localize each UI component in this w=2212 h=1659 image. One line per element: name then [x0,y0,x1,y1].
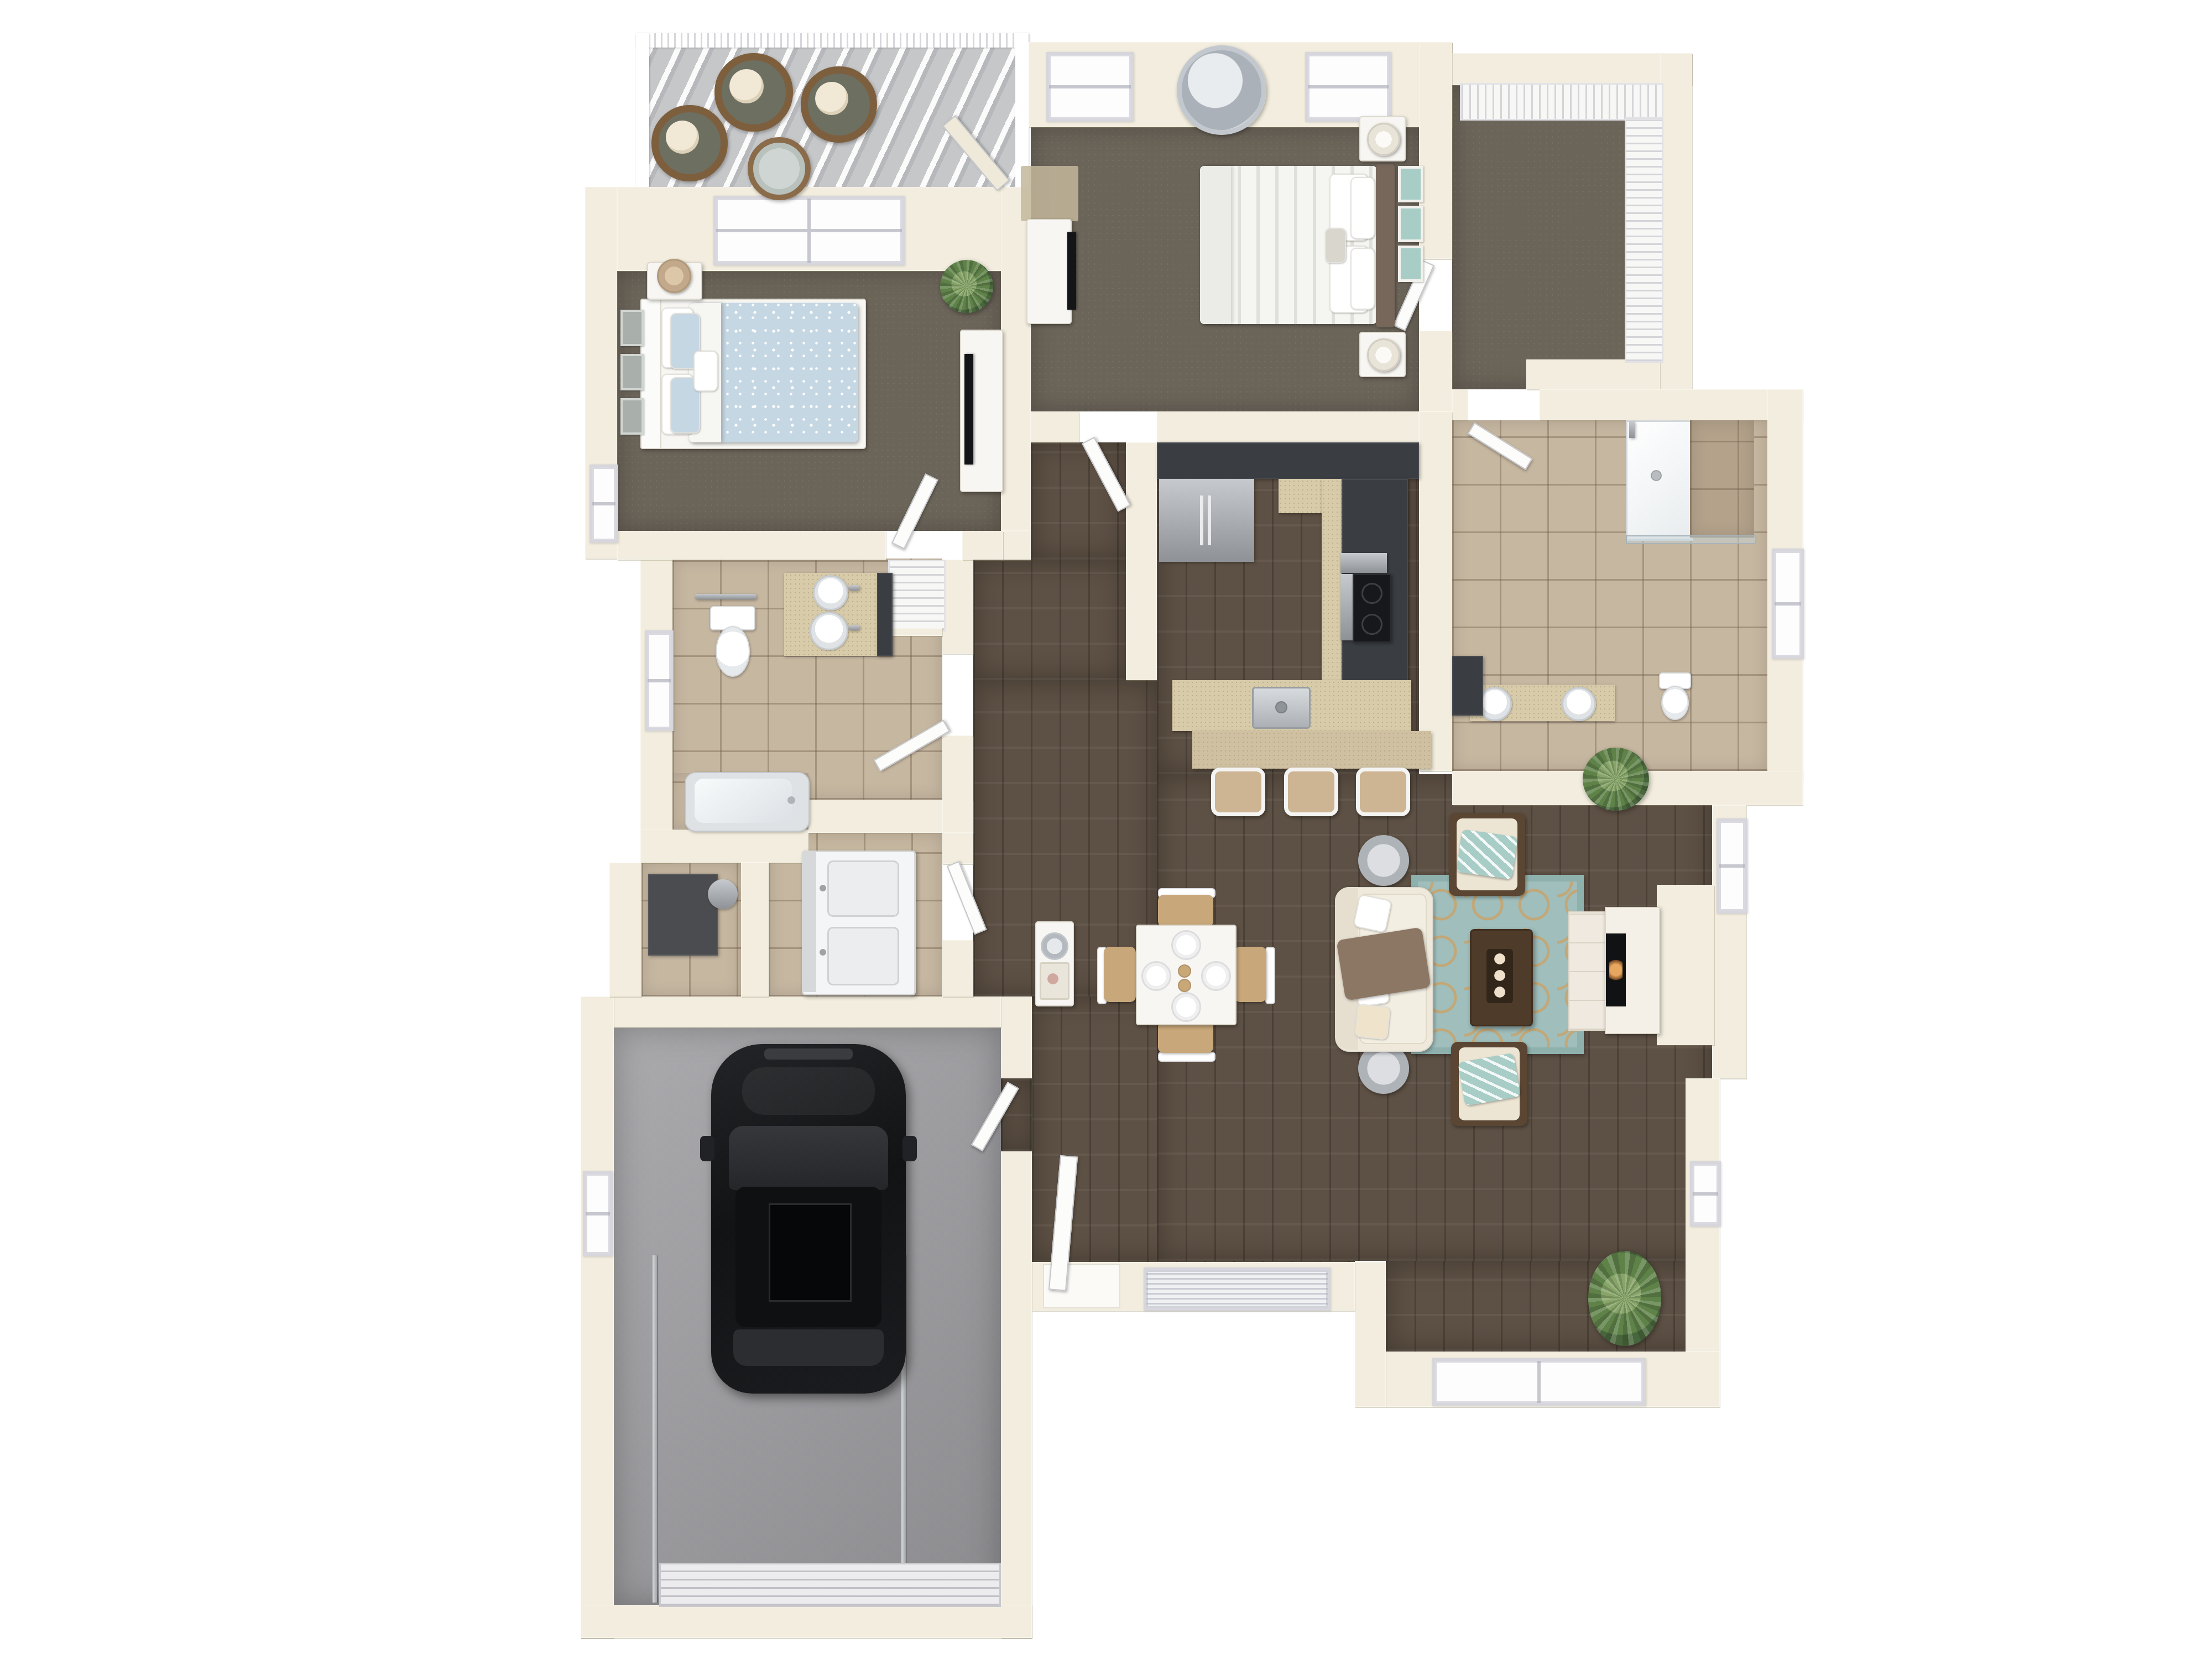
dining-candle-1 [1178,964,1191,978]
bar-stool-2 [1284,768,1338,816]
living-window-bottom [1432,1358,1646,1406]
dining-chair-right [1234,947,1266,1002]
master-headboard [1376,164,1395,327]
patio-chair-1 [714,53,793,132]
shower-drain [1651,470,1662,481]
hall-vanity-faucet-1 [848,585,859,591]
hall-bath-window [645,630,674,731]
closet-shelf-top [1460,83,1663,121]
dining-chair-bottom [1158,1021,1213,1053]
wall-garage-left [581,997,614,1638]
hall-floor-upper [1031,442,1126,560]
washer-door [827,927,899,985]
furnace [648,874,718,956]
patio-chair-3 [651,105,728,181]
suv-sunroof [769,1203,852,1302]
master-lamp-1 [1367,123,1400,156]
wall-master-closet-a [1419,42,1452,259]
hall-floor-mid [973,560,1126,680]
sofa-pillow-1 [1353,894,1392,933]
master-art-2 [1398,206,1423,242]
floorplan-stage [0,0,2212,1659]
bar-stool-1 [1211,768,1265,816]
bar-stool-3 [1356,768,1410,816]
palm-plant [1583,748,1649,811]
washer-dryer-side-panel [802,851,816,992]
burner-1 [1361,583,1383,604]
refrigerator-handles [1200,495,1203,545]
master-pillow-4 [1350,248,1375,310]
wall-frame-2 [620,354,644,390]
refrigerator [1159,479,1254,562]
wall-bedrooms-hall-b [962,531,1003,560]
suv-hood [742,1067,875,1115]
foyer-window [1144,1267,1331,1311]
wall-master-closet-b [1419,331,1452,411]
dining-chair-top [1158,895,1213,927]
garage-window [583,1171,613,1256]
hall-vanity-sink-1 [813,575,848,611]
fireplace-hearth [1568,911,1607,1031]
master-duvet-fold [1200,166,1231,324]
wall-masterbath-top-b [1540,389,1803,420]
dining-chair-left [1104,947,1136,1002]
shower-glass-door [1626,535,1756,544]
wall-bedrooms-hall-a [617,531,886,560]
kitchen-upper-cabinets [1157,442,1419,479]
wall-fireplace-bump [1657,885,1714,1045]
place-setting-1 [1171,930,1201,960]
wall-garage-bottom [581,1605,1032,1638]
patio-railing-top [636,33,1029,48]
master-bath-window [1772,549,1804,659]
wall-master-bottom-b [1157,411,1419,442]
master-lamp-2 [1367,338,1400,372]
hall-vanity-sink-2 [810,612,848,650]
wall-closet-top [1452,53,1692,85]
garage-door-track-left [653,1255,657,1603]
wall-garage-top [581,997,1001,1027]
suv-grille [764,1048,853,1060]
great-room-floor-south [1386,1261,1712,1352]
console-shell [1047,973,1058,984]
fireplace-flame [1609,958,1623,982]
island-bar-tier [1192,731,1431,769]
chair-cushion [815,82,848,115]
wall-hallbath-right-b [942,735,973,833]
place-setting-4 [1201,961,1231,991]
suv-car [711,1044,906,1394]
towel-bar [695,594,757,599]
hall-vanity-faucet-2 [848,625,859,630]
chair-cushion [729,69,764,103]
wall-closet-bottom [1526,359,1660,389]
wall-tubnook-bottom [640,830,808,863]
furnace-duct [708,879,738,909]
patio-table [748,137,811,200]
shower-base [1626,420,1693,541]
hall-vanity-cabinet [877,573,893,656]
master-window-left [1046,52,1134,122]
suv-mirror-left [700,1136,714,1161]
patio-railing-left [636,33,649,187]
wall-bedroom2-right-stub [1001,531,1031,560]
shower-bench [1690,420,1754,538]
suv-mirror-right [902,1136,917,1161]
master-tv-console [1026,219,1072,324]
burner-2 [1361,614,1383,635]
fern-plant [1588,1251,1661,1346]
suv-rear-window [733,1329,884,1366]
place-setting-3 [1141,961,1171,991]
bedroom2-plant [940,260,993,313]
bedroom2-lamp [657,259,691,293]
linen-closet-wall [888,628,942,636]
hall-toilet-bowl [716,626,750,677]
living-window-right-upper [1717,818,1747,914]
dryer-knob [820,949,826,956]
master-art-3 [1398,246,1423,282]
shower-head [1629,421,1635,438]
dining-chair-back-bottom [1158,1052,1215,1062]
bathtub-drain [787,796,795,804]
wall-frame-1 [620,310,644,346]
bedroom2-window [589,465,618,543]
patio-slider-window [713,196,905,265]
wall-laundry-right-a [942,833,973,864]
side-table-top [1358,835,1409,886]
linen-closet-shelves [888,560,946,632]
bedroom2-tv [964,354,973,465]
wall-kitchen-hall [1126,442,1157,680]
garage-door [659,1563,1001,1607]
wall-foyer-living [1355,1262,1386,1407]
patio-railing-right [1015,33,1029,187]
tray-candle-1 [1494,953,1505,964]
master-rug [1021,166,1078,221]
wall-exterior-left-mid [609,863,641,997]
chair-cushion [666,121,699,154]
master-toilet-bowl [1661,686,1689,720]
wall-frame-3 [620,398,644,435]
patio-chair-2 [801,66,877,143]
starfish-pillow [693,351,718,392]
tray-candle-2 [1494,970,1505,981]
wall-laundry-right-b [942,940,973,997]
living-window-right-lower [1690,1161,1721,1227]
wall-master-bottom-a [1031,411,1079,442]
closet-shelf-right [1625,117,1663,363]
suv-windshield [729,1126,888,1190]
master-pillow-3 [1350,177,1375,239]
master-vanity-sink-2 [1562,687,1596,721]
master-art-1 [1398,166,1423,202]
wall-hallbath-right-a [942,560,973,654]
master-bath-cabinet [1452,656,1483,716]
dryer-door [827,860,899,917]
accent-chair-top-throw [1456,829,1518,879]
master-window-right [1305,52,1391,122]
sofa-pillow-3 [1354,1004,1391,1040]
wall-closet-right [1660,53,1692,389]
dining-candle-2 [1178,979,1191,992]
bathtub-basin [695,779,792,823]
master-tv [1067,232,1076,310]
sunburst-mirror [1177,45,1266,135]
range-control-panel [1340,574,1353,640]
wall-masterbath-top-a [1452,389,1468,420]
washer-knob [820,885,826,891]
wall-utility-laundry [741,863,769,997]
tray-candle-3 [1494,987,1505,998]
wall-kitchen-bath [1419,411,1452,771]
island-faucet [1275,701,1287,713]
range-hood-micro [1340,553,1387,573]
dining-chair-back-right [1265,947,1275,1004]
console-mirror [1041,932,1068,960]
master-accent-pillow [1325,228,1346,263]
place-setting-2 [1171,992,1201,1022]
